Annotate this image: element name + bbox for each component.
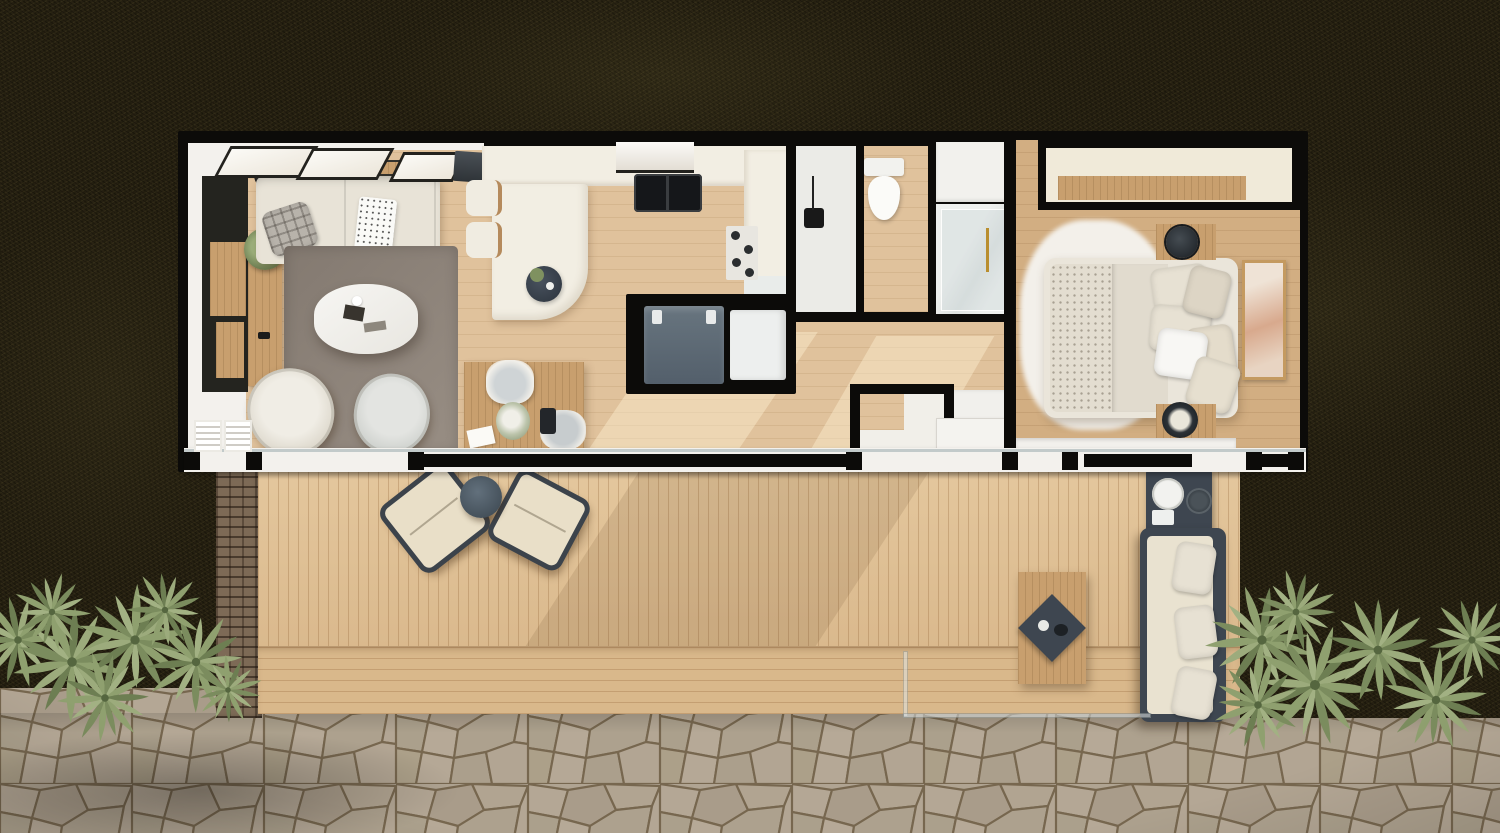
water-heater bbox=[730, 310, 786, 380]
washer-handle bbox=[652, 310, 662, 324]
sink-divider bbox=[666, 176, 669, 210]
burner bbox=[745, 268, 754, 277]
shower-head bbox=[804, 208, 824, 228]
tray-cup bbox=[1038, 620, 1049, 631]
round-tray-flowers bbox=[1162, 402, 1198, 438]
media-shelf-lower bbox=[216, 322, 244, 378]
glass-railing-vertical bbox=[904, 652, 907, 716]
duvet-textured bbox=[1050, 264, 1112, 412]
coffee-table-ornament bbox=[352, 296, 362, 306]
glass-strip bbox=[184, 449, 1306, 452]
wall-post bbox=[1062, 452, 1078, 470]
louver-window bbox=[194, 420, 222, 452]
outdoor-sofa-pillow bbox=[1173, 604, 1219, 660]
bedroom-closet-shelf bbox=[1058, 176, 1246, 200]
sliding-door-track bbox=[1084, 454, 1192, 467]
grill-tray bbox=[1152, 510, 1174, 525]
round-side-table bbox=[460, 476, 502, 518]
burner bbox=[732, 258, 741, 267]
glass-railing-horizontal bbox=[904, 714, 1150, 717]
shower-glass-door bbox=[941, 209, 1007, 311]
bar-stool bbox=[466, 180, 502, 216]
shower-handle-gold bbox=[986, 228, 989, 272]
wall-post bbox=[1288, 452, 1304, 470]
burner bbox=[744, 245, 753, 254]
wall-post bbox=[246, 452, 262, 470]
flower-bouquet bbox=[496, 402, 530, 440]
toilet-tank bbox=[864, 158, 904, 176]
bath-divider bbox=[928, 136, 936, 322]
wall-post bbox=[408, 452, 424, 470]
skylight bbox=[295, 148, 394, 180]
desk-tray bbox=[540, 408, 556, 434]
lawn-strip-right bbox=[1240, 688, 1500, 718]
outdoor-sofa-pillow bbox=[1170, 540, 1217, 596]
shower-room-floor bbox=[796, 146, 858, 312]
wall-post bbox=[846, 452, 862, 470]
washer-handle bbox=[706, 310, 716, 324]
range-hood bbox=[616, 142, 694, 173]
sliding-door-track bbox=[420, 454, 848, 467]
tray-plant bbox=[530, 268, 544, 282]
bath-divider bbox=[856, 136, 864, 322]
wall-post bbox=[184, 452, 200, 470]
tray-cups bbox=[546, 282, 554, 290]
coffee-table bbox=[314, 284, 418, 354]
shower-arm bbox=[812, 176, 814, 210]
bedroom-wall-left bbox=[1004, 136, 1016, 466]
wall-post bbox=[1002, 452, 1018, 470]
vanity-cabinet bbox=[936, 142, 1010, 202]
media-shelf-upper bbox=[210, 242, 246, 316]
scene-render bbox=[0, 0, 1500, 833]
burner bbox=[731, 231, 740, 240]
louver-window bbox=[224, 420, 252, 452]
desk-chair bbox=[486, 360, 534, 404]
tray-kettle bbox=[1054, 624, 1068, 636]
wall-art bbox=[1242, 260, 1286, 380]
path-shadow-bottom-left bbox=[0, 730, 460, 833]
stone-pillar-wall bbox=[216, 470, 262, 718]
wall-post bbox=[1246, 452, 1262, 470]
grill-burner bbox=[1186, 488, 1212, 514]
round-side-table bbox=[1166, 226, 1198, 258]
bar-stool bbox=[466, 222, 502, 258]
wood-console bbox=[248, 260, 282, 386]
deck-step-band bbox=[258, 646, 1240, 714]
console-remote bbox=[258, 332, 270, 339]
grill-plate-stack bbox=[1152, 478, 1184, 510]
storage-closet-wood bbox=[860, 394, 904, 430]
